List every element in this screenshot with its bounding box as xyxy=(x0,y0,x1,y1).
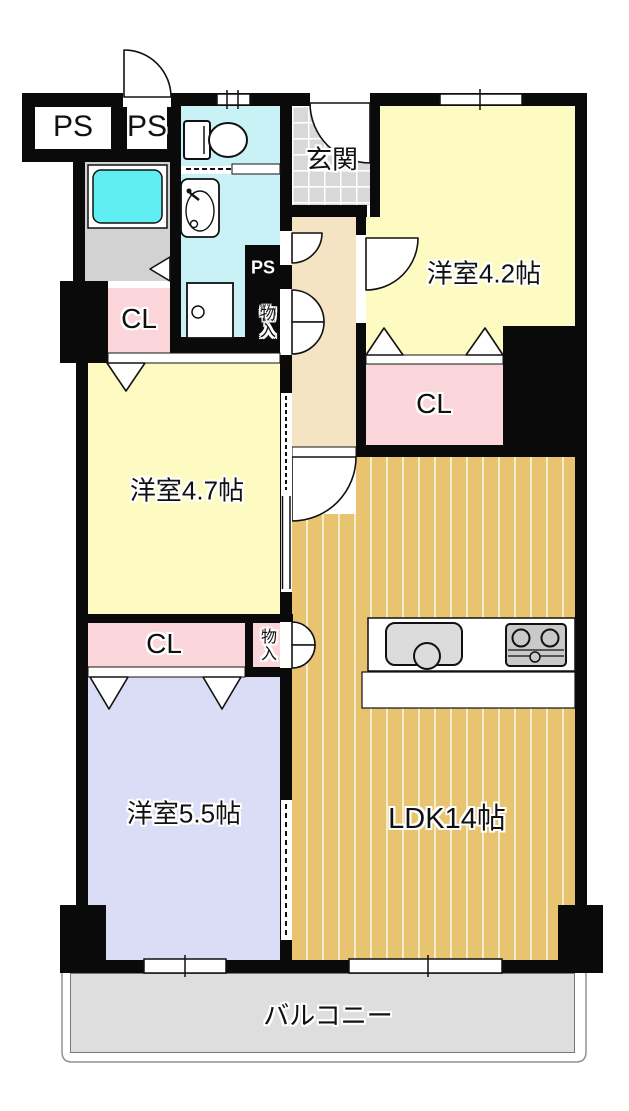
floor-plan: PS PS 玄関 洋室4.2帖 CL PS 物入 洋室4.7帖 CL LDK14… xyxy=(0,0,629,1111)
room-corridor xyxy=(292,217,356,447)
wall-pillar-right xyxy=(558,905,603,973)
wall-right xyxy=(575,93,587,962)
wall-bath-right xyxy=(170,103,181,355)
label-cl-lower: CL xyxy=(146,628,182,660)
label-ps-small: PS xyxy=(251,258,275,279)
room-western-4-2-a xyxy=(380,106,575,217)
wall-storage-low-btm xyxy=(253,667,292,677)
label-western47: 洋室4.7帖 xyxy=(130,471,244,508)
room-western-4-2-c xyxy=(366,326,503,355)
entrance-door-arc xyxy=(124,50,171,97)
wall-central xyxy=(280,93,292,962)
label-ps1: PS xyxy=(53,110,93,144)
wall-bath-left xyxy=(73,150,85,281)
label-cl-right: CL xyxy=(416,388,452,420)
label-genkan: 玄関 xyxy=(306,140,358,177)
wall-genkan-bottom xyxy=(280,205,367,217)
ldk-door-arc xyxy=(292,457,356,521)
room-washroom-upper xyxy=(181,174,280,245)
label-storage-upper: 物入 xyxy=(253,305,277,339)
wall-pillar-left xyxy=(60,905,106,973)
room-washroom-lower xyxy=(181,245,245,337)
room-bathroom xyxy=(85,162,170,281)
label-western55: 洋室5.5帖 xyxy=(127,794,241,831)
label-balcony: バルコニー xyxy=(263,996,392,1033)
label-cl-upper: CL xyxy=(121,303,157,335)
wall-ps-divider xyxy=(113,103,124,152)
wall-47-bottom xyxy=(76,614,293,623)
wall-bottom xyxy=(60,960,603,973)
room-ldk-main xyxy=(292,514,575,960)
room-toilet xyxy=(181,106,280,166)
label-ldk: LDK14帖 xyxy=(388,795,506,837)
wall-pillar-42 xyxy=(503,326,575,457)
room-ldk-upper xyxy=(356,457,575,514)
wall-corridor-right xyxy=(356,217,366,457)
label-storage-lower: 物入 xyxy=(254,628,278,662)
wall-cl-mono-divider xyxy=(245,614,253,677)
wall-left-lower xyxy=(76,355,88,960)
label-western42: 洋室4.2帖 xyxy=(427,254,541,291)
label-ps2: PS xyxy=(127,110,167,144)
wall-cl-left-block xyxy=(60,281,108,363)
wall-genkan-right xyxy=(370,93,380,217)
